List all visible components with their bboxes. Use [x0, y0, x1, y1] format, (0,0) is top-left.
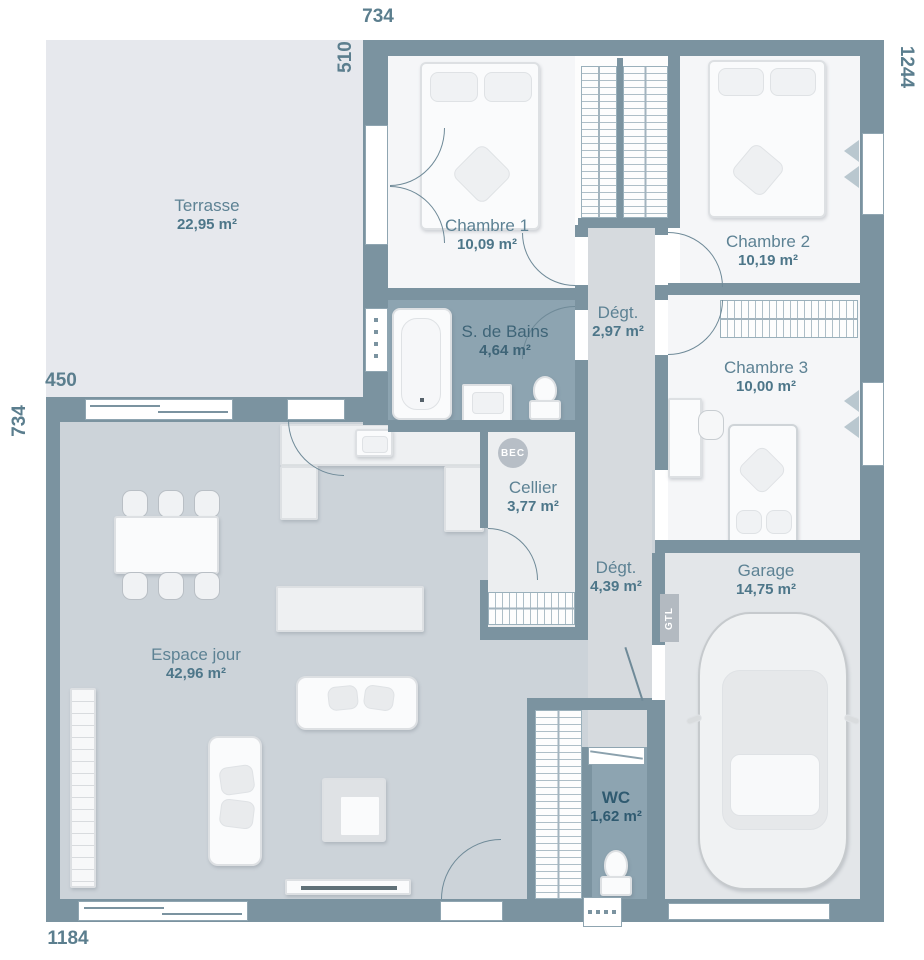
cushion — [218, 798, 255, 830]
pillow — [766, 510, 792, 534]
room-area: 10,09 m² — [445, 236, 529, 253]
dimension-bottom: 1184 — [42, 928, 94, 950]
french-door-chambre1 — [365, 125, 388, 245]
throw-pillow — [730, 142, 786, 198]
dining-chair — [194, 490, 220, 518]
room-name: Chambre 1 — [445, 216, 529, 236]
window-dot — [604, 910, 608, 914]
wall-cellier-left-a — [480, 420, 488, 528]
wardrobe-chambre2 — [623, 66, 668, 218]
room-name: Terrasse — [174, 196, 239, 216]
coffee-table-top — [340, 796, 380, 836]
garage-sectional-door — [668, 903, 830, 920]
dimension-terrace-height: 510 — [335, 37, 357, 77]
window-casement-glyph — [844, 416, 859, 438]
wardrobe-chambre3 — [720, 300, 858, 338]
wall-garage-top — [655, 540, 884, 553]
room-label-degt2: Dégt. 4,39 m² — [590, 558, 642, 595]
bathtub — [392, 308, 452, 420]
tv-screen — [301, 886, 397, 890]
wall-corridor-left-b — [575, 285, 588, 310]
wall-exterior-left — [46, 397, 60, 922]
room-name: Cellier — [507, 478, 559, 498]
dining-table — [114, 516, 219, 574]
room-name: Dégt. — [592, 303, 644, 323]
desk-chambre3 — [668, 398, 702, 478]
pillow — [430, 72, 478, 102]
room-area: 1,62 m² — [590, 808, 642, 825]
window-dot — [588, 910, 592, 914]
room-label-degt1: Dégt. 2,97 m² — [592, 303, 644, 340]
cushion — [218, 764, 256, 796]
room-area: 10,00 m² — [724, 378, 808, 395]
dimension-left: 734 — [9, 400, 31, 442]
bec-marker-label: BEC — [501, 448, 525, 459]
bay-pane-line — [162, 913, 242, 915]
pillow — [770, 68, 816, 96]
room-area: 22,95 m² — [174, 216, 239, 233]
cushion — [362, 684, 395, 712]
sliding-bay-terrace — [85, 399, 233, 420]
window-dot — [374, 318, 378, 322]
sofa-vertical — [208, 736, 262, 866]
sink-basin — [472, 392, 504, 414]
room-area: 42,96 m² — [151, 665, 241, 682]
sliding-bay-south — [78, 901, 248, 921]
window-dot — [374, 342, 378, 346]
sink-basin — [362, 436, 388, 453]
bed-double-chambre2 — [708, 60, 826, 218]
room-label-chambre2: Chambre 2 10,19 m² — [726, 232, 810, 269]
wall-sdb-top — [388, 288, 575, 300]
window-dot — [374, 330, 378, 334]
closet-cellier — [488, 592, 575, 625]
room-name: Garage — [736, 561, 796, 581]
dimension-right: 1244 — [895, 42, 917, 92]
pillow — [736, 510, 762, 534]
door-degt-garage — [652, 645, 665, 700]
bay-pane-line — [84, 907, 164, 909]
desk-chair-chambre3 — [698, 410, 724, 440]
kitchen-island — [276, 586, 424, 632]
toilet-tank — [600, 876, 632, 896]
wall-corridor-right-c — [655, 355, 668, 470]
room-label-wc: WC 1,62 m² — [590, 788, 642, 825]
gtl-marker-label: GTL — [664, 607, 675, 630]
room-name: Espace jour — [151, 645, 241, 665]
kitchen-counter-left — [280, 466, 318, 520]
room-label-chambre1: Chambre 1 10,09 m² — [445, 216, 529, 253]
room-name: S. de Bains — [462, 322, 549, 342]
tv-console — [285, 879, 411, 895]
car — [698, 612, 848, 890]
bay-pane-line — [158, 411, 228, 413]
room-label-garage: Garage 14,75 m² — [736, 561, 796, 598]
window-dot — [374, 354, 378, 358]
dimension-top: 734 — [357, 6, 399, 28]
wall-closet-divider — [617, 58, 623, 218]
dining-chair — [122, 572, 148, 600]
room-name: Chambre 2 — [726, 232, 810, 252]
dining-chair — [194, 572, 220, 600]
bathroom-vanity-sink — [462, 384, 512, 422]
door-terrace-kitchen — [287, 399, 345, 420]
wall-corridor-left-c — [575, 360, 588, 640]
cushion — [327, 684, 359, 711]
car-windshield — [730, 754, 820, 816]
throw-pillow — [737, 445, 788, 496]
pillow — [484, 72, 532, 102]
wall-wc-right — [647, 710, 660, 899]
dining-chair — [158, 490, 184, 518]
bec-marker: BEC — [498, 438, 528, 468]
throw-pillow — [451, 143, 513, 205]
closet-degt2 — [535, 710, 582, 899]
wardrobe-chambre1 — [581, 66, 617, 218]
room-area: 4,39 m² — [590, 578, 642, 595]
window-casement-glyph — [844, 140, 859, 162]
floor-plan: BEC GTL Terrasse 22,95 m² Chambre 1 10,0… — [0, 0, 924, 960]
wall-corridor-right-b — [655, 285, 668, 300]
room-name: Dégt. — [590, 558, 642, 578]
wall-sdb-bottom — [388, 420, 588, 432]
room-area: 2,97 m² — [592, 323, 644, 340]
room-area: 14,75 m² — [736, 581, 796, 598]
wall-closets-right — [668, 56, 680, 228]
room-name: WC — [590, 788, 642, 808]
bathtub-drain — [420, 398, 424, 402]
wall-closets-bottom — [578, 218, 680, 228]
bay-pane-line — [90, 405, 160, 407]
room-area: 4,64 m² — [462, 342, 549, 359]
pillow — [718, 68, 764, 96]
door-south-living — [440, 901, 503, 921]
window-casement-glyph — [844, 390, 859, 412]
room-label-sdb: S. de Bains 4,64 m² — [462, 322, 549, 359]
kitchen-counter-right — [444, 466, 484, 532]
window-dot — [612, 910, 616, 914]
room-label-espace-jour: Espace jour 42,96 m² — [151, 645, 241, 682]
window-casement-glyph — [844, 166, 859, 188]
room-label-chambre3: Chambre 3 10,00 m² — [724, 358, 808, 395]
room-area: 3,77 m² — [507, 498, 559, 515]
wall-wcblock-top — [527, 698, 660, 710]
bookshelf — [70, 688, 96, 888]
window-chambre2 — [862, 133, 884, 215]
room-name: Chambre 3 — [724, 358, 808, 378]
toilet-tank — [529, 400, 561, 420]
window-dot — [596, 910, 600, 914]
dining-chair — [158, 572, 184, 600]
dimension-terrace-width: 450 — [40, 370, 82, 392]
wall-exterior-top — [363, 40, 884, 56]
room-label-terrasse: Terrasse 22,95 m² — [174, 196, 239, 233]
kitchen-sink — [355, 429, 393, 457]
sofa-horizontal — [296, 676, 418, 730]
gtl-marker: GTL — [660, 594, 679, 642]
window-chambre3 — [862, 382, 884, 466]
room-area: 10,19 m² — [726, 252, 810, 269]
room-label-cellier: Cellier 3,77 m² — [507, 478, 559, 515]
bed-single-chambre3 — [728, 424, 798, 546]
bathtub-basin — [401, 318, 441, 410]
room-floor-degt1 — [588, 225, 655, 470]
coffee-table — [322, 778, 386, 842]
wall-closet-degt2-left — [527, 710, 535, 899]
wall-cellier-bottom — [483, 627, 588, 640]
room-floor-degt2-ext — [592, 710, 647, 747]
dining-chair — [122, 490, 148, 518]
